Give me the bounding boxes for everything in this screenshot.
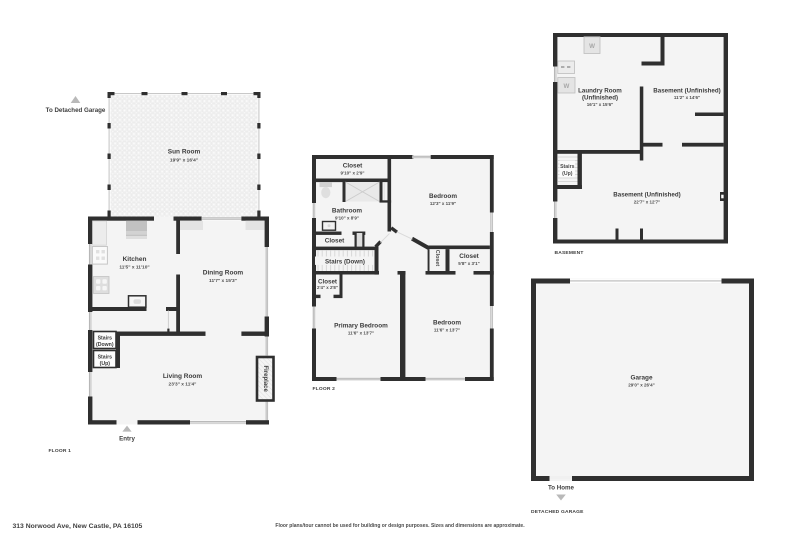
svg-text:(Up): (Up) xyxy=(100,361,111,367)
svg-text:19'9" x 16'4": 19'9" x 16'4" xyxy=(170,158,198,164)
svg-text:Stairs: Stairs xyxy=(560,164,575,170)
svg-text:Living Room: Living Room xyxy=(163,373,203,380)
svg-text:W: W xyxy=(589,43,595,50)
svg-text:2'4" x 2'8": 2'4" x 2'8" xyxy=(317,285,338,290)
svg-text:22'7" x 12'7": 22'7" x 12'7" xyxy=(634,200,660,205)
svg-text:Primary Bedroom: Primary Bedroom xyxy=(334,323,388,330)
svg-text:Sun Room: Sun Room xyxy=(168,149,201,156)
svg-text:11'5" x 11'10": 11'5" x 11'10" xyxy=(119,265,149,271)
svg-text:Bedroom: Bedroom xyxy=(429,193,457,200)
svg-text:Closet: Closet xyxy=(325,237,345,244)
svg-text:Floor plans/tour cannot be use: Floor plans/tour cannot be used for buil… xyxy=(275,523,525,529)
svg-text:Stairs: Stairs xyxy=(98,335,113,341)
svg-text:(Down): (Down) xyxy=(96,342,114,348)
svg-text:9'10" x 8'9": 9'10" x 8'9" xyxy=(335,216,359,221)
svg-text:Garage: Garage xyxy=(630,375,652,382)
svg-text:To Detached Garage: To Detached Garage xyxy=(46,107,106,114)
svg-text:11'6" x 13'7": 11'6" x 13'7" xyxy=(348,331,374,336)
svg-text:Stairs: Stairs xyxy=(98,354,113,360)
svg-text:(Up): (Up) xyxy=(562,171,573,177)
svg-text:Bathroom: Bathroom xyxy=(332,208,362,215)
svg-text:11'2" x 14'6": 11'2" x 14'6" xyxy=(674,95,700,100)
svg-text:16'1" x 15'6": 16'1" x 15'6" xyxy=(587,102,613,107)
svg-text:Bedroom: Bedroom xyxy=(433,320,461,327)
svg-text:11'7" x 15'3": 11'7" x 15'3" xyxy=(209,278,237,284)
svg-text:5'8" x 3'1": 5'8" x 3'1" xyxy=(458,261,479,266)
svg-text:FLOOR 1: FLOOR 1 xyxy=(49,448,72,454)
svg-text:29'0" x 26'4": 29'0" x 26'4" xyxy=(628,383,654,388)
svg-text:Closet: Closet xyxy=(343,163,363,170)
svg-text:Basement (Unfinished): Basement (Unfinished) xyxy=(653,88,720,95)
svg-text:Entry: Entry xyxy=(119,436,135,443)
svg-text:11'6" x 13'7": 11'6" x 13'7" xyxy=(434,328,460,333)
svg-text:To Home: To Home xyxy=(548,485,575,492)
svg-text:Dining Room: Dining Room xyxy=(203,270,244,277)
svg-text:Fireplace: Fireplace xyxy=(262,366,268,393)
svg-text:Kitchen: Kitchen xyxy=(123,256,147,263)
svg-text:Basement (Unfinished): Basement (Unfinished) xyxy=(613,192,680,199)
svg-text:12'3" x 11'9": 12'3" x 11'9" xyxy=(430,201,456,206)
svg-text:Laundry Room: Laundry Room xyxy=(578,87,622,94)
svg-text:DETACHED GARAGE: DETACHED GARAGE xyxy=(531,509,584,515)
svg-text:BASEMENT: BASEMENT xyxy=(555,250,584,256)
svg-text:23'3" x 11'4": 23'3" x 11'4" xyxy=(169,382,197,388)
svg-text:313 Norwood Ave, New Castle, P: 313 Norwood Ave, New Castle, PA 16105 xyxy=(13,523,143,530)
svg-text:(Unfinished): (Unfinished) xyxy=(582,94,618,101)
svg-text:W: W xyxy=(563,83,569,90)
svg-text:Closet: Closet xyxy=(434,250,440,267)
svg-text:Stairs (Down): Stairs (Down) xyxy=(325,259,365,266)
svg-text:FLOOR 2: FLOOR 2 xyxy=(313,386,336,392)
svg-text:Closet: Closet xyxy=(459,253,479,260)
svg-text:9'10" x 2'9": 9'10" x 2'9" xyxy=(341,171,365,176)
